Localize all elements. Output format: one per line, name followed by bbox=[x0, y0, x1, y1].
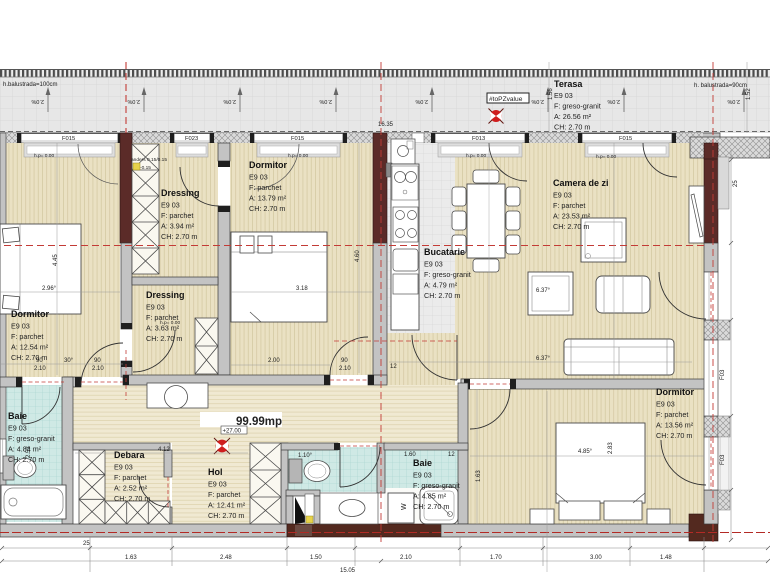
svg-text:E9 03: E9 03 bbox=[424, 260, 443, 269]
svg-text:2.0%: 2.0% bbox=[531, 98, 544, 104]
svg-text:F015: F015 bbox=[62, 136, 75, 142]
svg-text:2.96°: 2.96° bbox=[42, 286, 57, 292]
svg-text:30°: 30° bbox=[64, 358, 74, 364]
svg-text:1.63: 1.63 bbox=[476, 470, 482, 482]
svg-text:1.60: 1.60 bbox=[404, 452, 416, 458]
svg-text:CH: 2.70 m: CH: 2.70 m bbox=[114, 494, 150, 503]
svg-text:2.0%: 2.0% bbox=[319, 98, 332, 104]
svg-text:h.p= 0.00: h.p= 0.00 bbox=[34, 153, 54, 159]
svg-text:12: 12 bbox=[390, 364, 397, 370]
svg-text:F: parchet: F: parchet bbox=[11, 332, 43, 341]
svg-text:F: parchet: F: parchet bbox=[553, 201, 585, 210]
svg-text:90: 90 bbox=[94, 358, 101, 364]
svg-text:1.63: 1.63 bbox=[125, 555, 137, 561]
svg-text:90: 90 bbox=[36, 358, 43, 364]
svg-text:CH: 2.70 m: CH: 2.70 m bbox=[161, 232, 197, 241]
svg-text:CH: 2.70 m: CH: 2.70 m bbox=[424, 291, 460, 300]
svg-text:2.53: 2.53 bbox=[26, 446, 32, 458]
svg-text:F: parchet: F: parchet bbox=[656, 410, 688, 419]
svg-text:A: 13.79 m²: A: 13.79 m² bbox=[249, 194, 287, 203]
svg-text:6.37°: 6.37° bbox=[536, 356, 551, 362]
svg-text:E9 03: E9 03 bbox=[413, 471, 432, 480]
svg-text:#toPZvalue: #toPZvalue bbox=[489, 96, 523, 103]
svg-text:1.10°: 1.10° bbox=[298, 453, 313, 459]
svg-text:F015: F015 bbox=[619, 136, 632, 142]
svg-text:2.10: 2.10 bbox=[339, 366, 351, 372]
svg-text:A: 4.79 m²: A: 4.79 m² bbox=[424, 281, 458, 290]
svg-text:2.48: 2.48 bbox=[220, 555, 232, 561]
svg-text:2.0%: 2.0% bbox=[607, 98, 620, 104]
svg-text:A: 13.56 m²: A: 13.56 m² bbox=[656, 421, 694, 430]
svg-text:Dormitor: Dormitor bbox=[656, 387, 694, 397]
svg-text:CH: 2.70 m: CH: 2.70 m bbox=[554, 123, 590, 132]
svg-text:F: parchet: F: parchet bbox=[161, 211, 193, 220]
svg-text:E9 03: E9 03 bbox=[208, 480, 227, 489]
svg-text:1.56: 1.56 bbox=[548, 88, 554, 100]
svg-text:F023: F023 bbox=[185, 136, 198, 142]
svg-text:Dressing: Dressing bbox=[146, 290, 185, 300]
svg-text:Baie: Baie bbox=[413, 458, 432, 468]
svg-text:1.52: 1.52 bbox=[746, 88, 752, 100]
svg-text:3.00: 3.00 bbox=[590, 555, 602, 561]
svg-text:1.70: 1.70 bbox=[490, 555, 502, 561]
svg-text:Dormitor: Dormitor bbox=[11, 309, 49, 319]
svg-text:2.10: 2.10 bbox=[92, 366, 104, 372]
svg-text:90: 90 bbox=[341, 358, 348, 364]
svg-text:2.0%: 2.0% bbox=[727, 98, 740, 104]
svg-text:1.50: 1.50 bbox=[310, 555, 322, 561]
svg-text:F015: F015 bbox=[291, 136, 304, 142]
svg-text:2.83: 2.83 bbox=[608, 442, 614, 454]
svg-text:F: greso-granit: F: greso-granit bbox=[424, 270, 471, 279]
svg-text:Dressing: Dressing bbox=[161, 188, 200, 198]
svg-text:CH: 2.70 m: CH: 2.70 m bbox=[413, 502, 449, 511]
svg-text:Dormitor: Dormitor bbox=[249, 160, 287, 170]
svg-text:CH: 2.70 m: CH: 2.70 m bbox=[656, 431, 692, 440]
svg-text:E9 03: E9 03 bbox=[11, 322, 30, 331]
svg-text:Bucatarie: Bucatarie bbox=[424, 247, 465, 257]
svg-text:2.0%: 2.0% bbox=[127, 98, 140, 104]
svg-text:E9 03: E9 03 bbox=[8, 424, 27, 433]
svg-text:E9 03: E9 03 bbox=[249, 173, 268, 182]
svg-text:E9 03: E9 03 bbox=[656, 400, 675, 409]
svg-text:A: 12.41 m²: A: 12.41 m² bbox=[208, 501, 246, 510]
svg-text:1.48: 1.48 bbox=[660, 555, 672, 561]
svg-text:15.05: 15.05 bbox=[340, 568, 356, 574]
svg-text:h.balustrada=100cm: h.balustrada=100cm bbox=[3, 82, 58, 88]
svg-text:4.12: 4.12 bbox=[158, 447, 170, 453]
svg-text:E9 03: E9 03 bbox=[146, 303, 165, 312]
svg-text:A: 12.54 m²: A: 12.54 m² bbox=[11, 343, 49, 352]
svg-text:4.60: 4.60 bbox=[355, 250, 361, 262]
svg-text:F: greso-granit: F: greso-granit bbox=[413, 481, 460, 490]
svg-text:A: 2.52 m²: A: 2.52 m² bbox=[114, 484, 148, 493]
svg-text:12: 12 bbox=[448, 452, 455, 458]
svg-text:anders 0.15/0.15: anders 0.15/0.15 bbox=[131, 157, 167, 163]
svg-text:F: greso-granit: F: greso-granit bbox=[554, 102, 601, 111]
svg-text:A: 23.53 m²: A: 23.53 m² bbox=[553, 212, 591, 221]
svg-text:F03: F03 bbox=[720, 454, 726, 465]
svg-text:E9 03: E9 03 bbox=[114, 463, 133, 472]
svg-text:25: 25 bbox=[83, 541, 90, 547]
svg-text:CH: 2.70 m: CH: 2.70 m bbox=[553, 222, 589, 231]
svg-text:3.18: 3.18 bbox=[296, 286, 308, 292]
svg-text:h.p= 0.00: h.p= 0.00 bbox=[466, 153, 486, 159]
svg-text:E9 03: E9 03 bbox=[554, 91, 573, 100]
svg-text:E9 03: E9 03 bbox=[553, 191, 572, 200]
svg-text:4.85°: 4.85° bbox=[578, 449, 593, 455]
svg-text:F: greso-granit: F: greso-granit bbox=[8, 434, 55, 443]
svg-text:A: 4.84 m²: A: 4.84 m² bbox=[8, 445, 42, 454]
svg-text:Terasa: Terasa bbox=[554, 79, 583, 89]
svg-text:W: W bbox=[401, 503, 408, 510]
svg-text:2.0%: 2.0% bbox=[31, 98, 44, 104]
svg-text:Hol: Hol bbox=[208, 467, 223, 477]
svg-text:F013: F013 bbox=[472, 136, 485, 142]
svg-text:CH: 2.70 m: CH: 2.70 m bbox=[208, 511, 244, 520]
svg-text:2.00: 2.00 bbox=[268, 358, 280, 364]
svg-text:A: 3.94 m²: A: 3.94 m² bbox=[161, 222, 195, 231]
svg-text:E9 03: E9 03 bbox=[161, 201, 180, 210]
svg-text:6.37°: 6.37° bbox=[536, 288, 551, 294]
svg-text:25: 25 bbox=[733, 180, 739, 187]
svg-text:F: parchet: F: parchet bbox=[208, 490, 240, 499]
svg-text:h. balustrada=90cm: h. balustrada=90cm bbox=[694, 83, 747, 89]
svg-text:F: parchet: F: parchet bbox=[249, 183, 281, 192]
svg-text:-0.15: -0.15 bbox=[140, 165, 151, 171]
svg-text:2.10: 2.10 bbox=[400, 555, 412, 561]
svg-text:F: parchet: F: parchet bbox=[114, 473, 146, 482]
svg-text:2.0%: 2.0% bbox=[223, 98, 236, 104]
svg-text:Debara: Debara bbox=[114, 450, 146, 460]
svg-text:A: 4.85 m²: A: 4.85 m² bbox=[413, 492, 447, 501]
svg-text:16.35: 16.35 bbox=[378, 122, 394, 128]
svg-text:Camera de zi: Camera de zi bbox=[553, 178, 609, 188]
svg-text:4.45: 4.45 bbox=[53, 254, 59, 266]
svg-text:h.p= 0.00: h.p= 0.00 bbox=[288, 153, 308, 159]
svg-text:2.10: 2.10 bbox=[34, 366, 46, 372]
svg-text:+27.00: +27.00 bbox=[223, 429, 242, 435]
svg-text:F03: F03 bbox=[720, 369, 726, 380]
svg-text:A: 26.56 m²: A: 26.56 m² bbox=[554, 112, 592, 121]
svg-text:h.p= 0.00: h.p= 0.00 bbox=[596, 154, 616, 160]
svg-text:CH: 2.70 m: CH: 2.70 m bbox=[146, 334, 182, 343]
svg-text:2.0%: 2.0% bbox=[415, 98, 428, 104]
svg-text:h.p= 0.00: h.p= 0.00 bbox=[160, 320, 180, 326]
svg-text:Baie: Baie bbox=[8, 411, 27, 421]
svg-text:CH: 2.70 m: CH: 2.70 m bbox=[249, 204, 285, 213]
